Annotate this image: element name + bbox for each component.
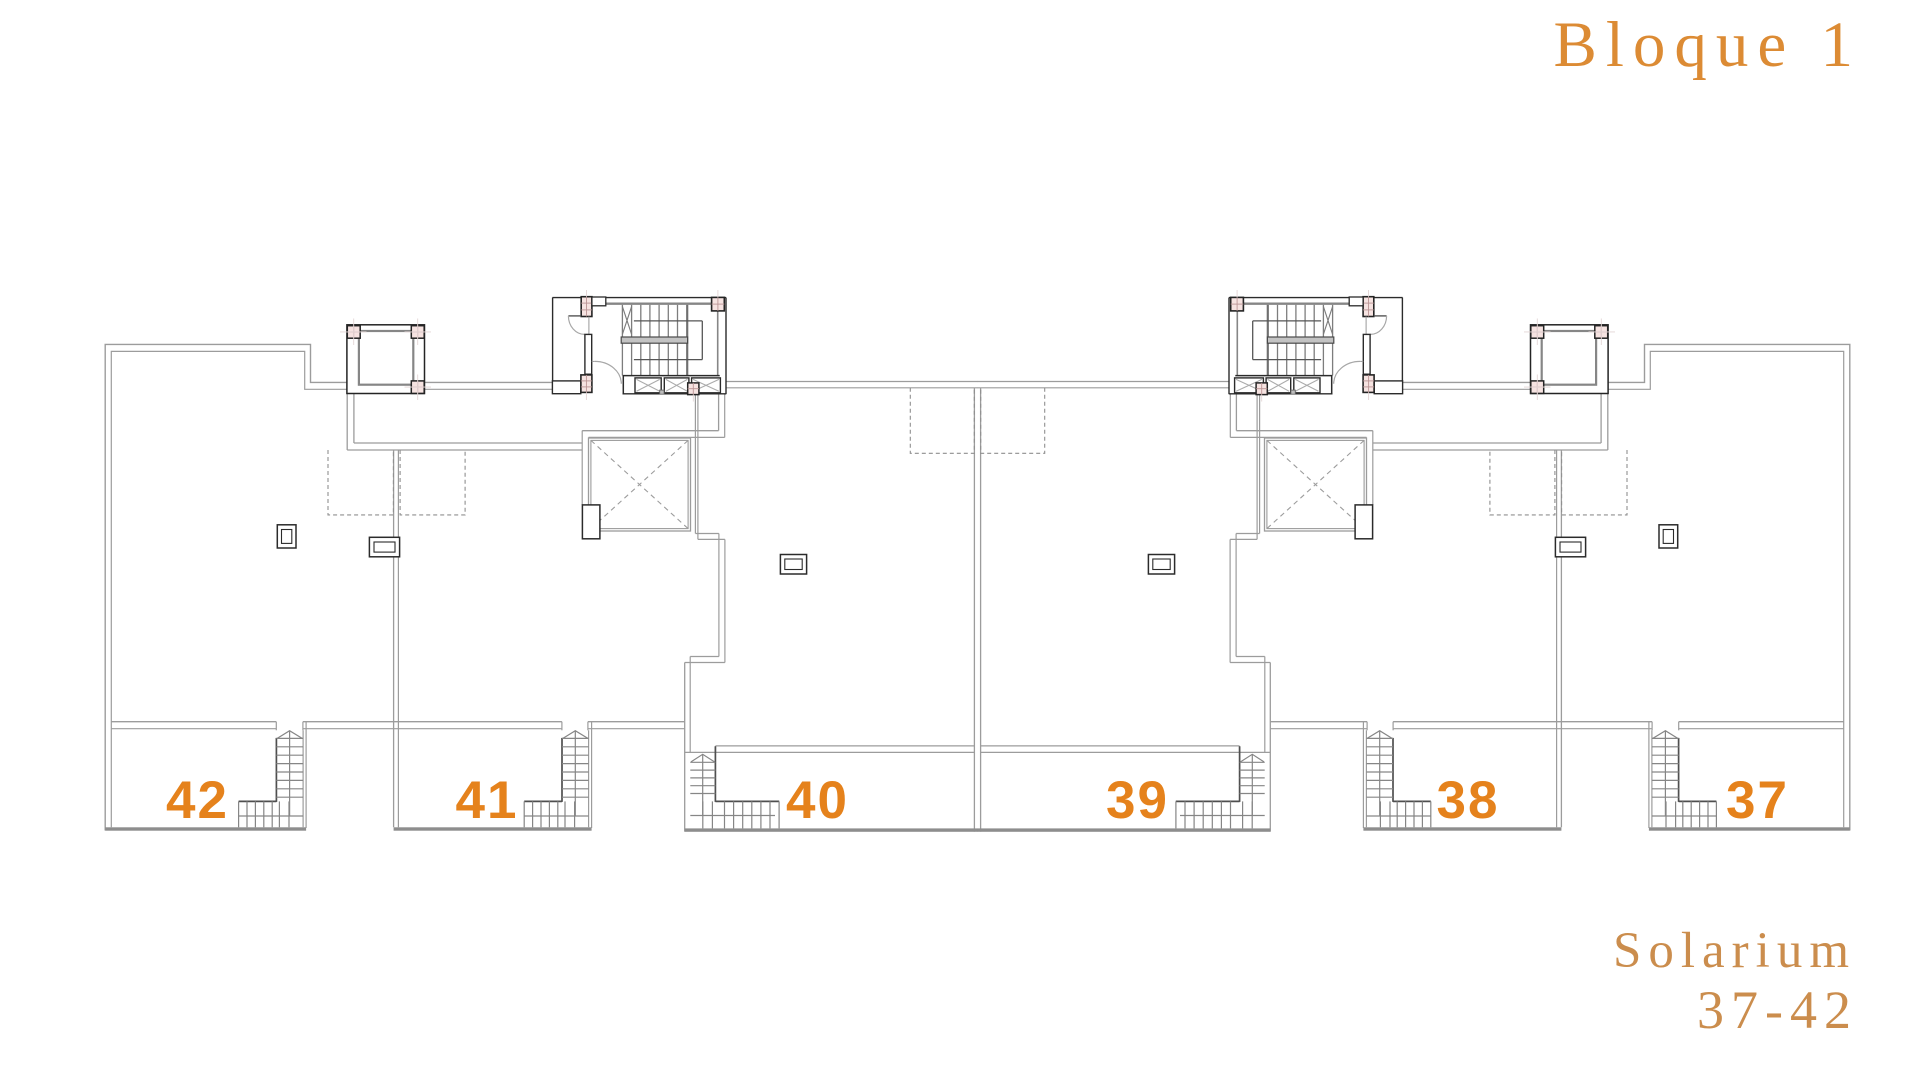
svg-text:37-42: 37-42 [1697,980,1858,1040]
svg-text:41: 41 [456,771,519,830]
svg-text:Bloque 1: Bloque 1 [1553,9,1862,81]
svg-text:42: 42 [166,771,229,830]
svg-text:39: 39 [1106,771,1169,830]
svg-text:40: 40 [786,771,849,830]
svg-text:37: 37 [1726,771,1789,830]
svg-text:38: 38 [1437,771,1500,830]
svg-text:Solarium: Solarium [1613,923,1856,979]
